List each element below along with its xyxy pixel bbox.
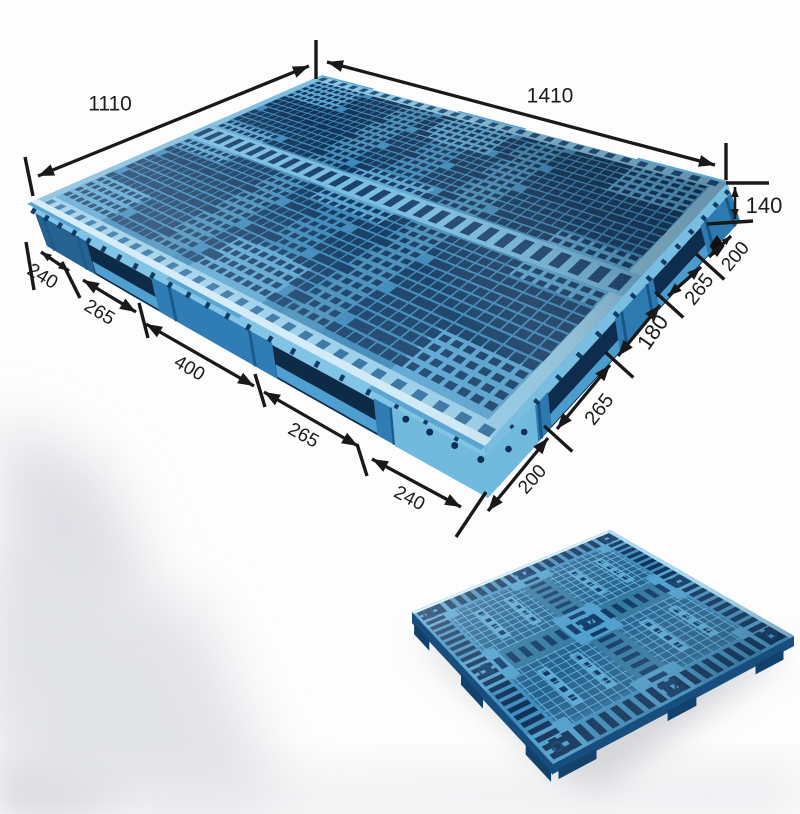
svg-text:1410: 1410 (527, 85, 574, 108)
svg-text:1110: 1110 (88, 93, 132, 116)
svg-text:140: 140 (746, 193, 783, 218)
